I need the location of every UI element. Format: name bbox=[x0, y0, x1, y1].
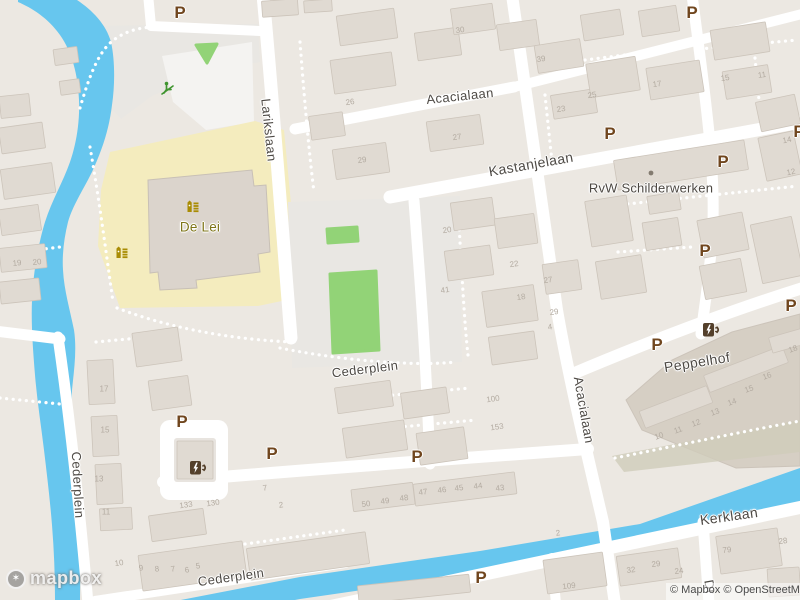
parking-icon: P bbox=[604, 124, 615, 144]
mapbox-logo-text: mapbox bbox=[30, 568, 102, 589]
house-number: 23 bbox=[556, 104, 566, 114]
house-number: 17 bbox=[100, 385, 109, 394]
parking-icon: P bbox=[174, 3, 185, 23]
house-number: 18 bbox=[516, 292, 526, 302]
building bbox=[91, 415, 119, 456]
building bbox=[304, 0, 333, 13]
building bbox=[53, 46, 79, 65]
house-number: 27 bbox=[543, 275, 553, 285]
house-number: 29 bbox=[651, 559, 661, 569]
house-number: 41 bbox=[440, 285, 450, 295]
building bbox=[0, 93, 31, 118]
house-number: 48 bbox=[399, 493, 409, 503]
house-number: 15 bbox=[101, 426, 110, 435]
building bbox=[444, 245, 494, 281]
parking-icon: P bbox=[793, 122, 800, 142]
building bbox=[488, 331, 537, 365]
green-strip bbox=[327, 227, 358, 243]
house-number: 12 bbox=[786, 167, 797, 178]
house-number: 30 bbox=[455, 25, 465, 35]
building bbox=[132, 327, 182, 367]
house-number: 100 bbox=[486, 394, 500, 405]
parking-icon: P bbox=[785, 296, 796, 316]
house-number: 47 bbox=[418, 487, 428, 497]
building bbox=[308, 112, 345, 140]
parking-icon: P bbox=[266, 444, 277, 464]
building bbox=[642, 217, 682, 250]
building bbox=[0, 122, 46, 154]
building bbox=[496, 19, 539, 50]
building bbox=[59, 79, 81, 96]
house-number: 17 bbox=[652, 79, 662, 89]
shop-icon bbox=[187, 200, 200, 214]
house-number: 27 bbox=[452, 132, 462, 142]
building bbox=[87, 359, 115, 404]
house-number: 46 bbox=[437, 485, 447, 495]
parking-icon: P bbox=[686, 3, 697, 23]
map-attribution[interactable]: © Mapbox © OpenStreetMap bbox=[666, 583, 800, 600]
attribution-text: © Mapbox © OpenStreetMap bbox=[670, 584, 800, 596]
parking-icon: P bbox=[475, 568, 486, 588]
playground-icon bbox=[160, 80, 176, 96]
ev-charging-icon bbox=[703, 323, 722, 338]
building bbox=[416, 427, 468, 465]
house-number: 24 bbox=[674, 566, 684, 576]
house-number: 29 bbox=[357, 155, 367, 165]
poi-label: RvW Schilderwerken bbox=[589, 181, 713, 196]
house-number: 50 bbox=[361, 499, 371, 509]
house-number: 49 bbox=[380, 496, 390, 506]
house-number: 130 bbox=[206, 498, 220, 509]
building bbox=[494, 213, 538, 248]
house-number: 13 bbox=[95, 475, 104, 484]
mapbox-logo-icon: ✶ bbox=[6, 569, 26, 589]
house-number: 14 bbox=[782, 135, 793, 146]
building bbox=[0, 204, 42, 235]
house-number: 43 bbox=[495, 483, 505, 493]
house-number: 22 bbox=[509, 259, 519, 269]
house-number: 11 bbox=[757, 70, 766, 80]
house-number: 109 bbox=[562, 581, 576, 592]
parking-icon: P bbox=[411, 447, 422, 467]
poi-dot bbox=[648, 170, 654, 176]
building bbox=[450, 197, 495, 231]
building bbox=[638, 5, 680, 37]
building bbox=[585, 195, 634, 247]
house-number: 28 bbox=[778, 536, 788, 546]
house-number: 20 bbox=[32, 257, 42, 267]
house-number: 153 bbox=[490, 422, 504, 433]
house-number: 19 bbox=[12, 258, 22, 268]
house-number: 32 bbox=[626, 565, 636, 575]
house-number: 10 bbox=[114, 558, 124, 568]
ev-charging-icon bbox=[190, 461, 209, 476]
map-base-layers bbox=[0, 0, 800, 600]
house-number: 25 bbox=[587, 90, 597, 100]
house-number: 79 bbox=[722, 545, 732, 555]
building bbox=[261, 0, 298, 17]
house-number: 39 bbox=[536, 54, 546, 64]
poi-label: De Lei bbox=[180, 220, 220, 235]
house-number: 15 bbox=[720, 73, 730, 83]
house-number: 29 bbox=[549, 307, 559, 317]
sports-field bbox=[330, 271, 379, 353]
parking-icon: P bbox=[717, 152, 728, 172]
building bbox=[95, 463, 123, 504]
building bbox=[595, 255, 646, 300]
house-number: 11 bbox=[102, 508, 110, 517]
house-number: 20 bbox=[442, 225, 452, 235]
shop-icon bbox=[116, 246, 129, 260]
building bbox=[0, 278, 41, 304]
house-number: 45 bbox=[454, 483, 464, 493]
house-number: 44 bbox=[473, 481, 483, 491]
parking-icon: P bbox=[699, 241, 710, 261]
mapbox-logo[interactable]: ✶ mapbox bbox=[6, 568, 102, 589]
map-canvas[interactable]: AcacialaanKastanjelaanLarikslaanAcaciala… bbox=[0, 0, 800, 600]
parking-icon: P bbox=[651, 335, 662, 355]
house-number: 133 bbox=[179, 500, 193, 511]
building bbox=[482, 285, 539, 328]
parking-icon: P bbox=[176, 412, 187, 432]
building bbox=[148, 375, 192, 410]
house-number: 26 bbox=[345, 97, 355, 107]
